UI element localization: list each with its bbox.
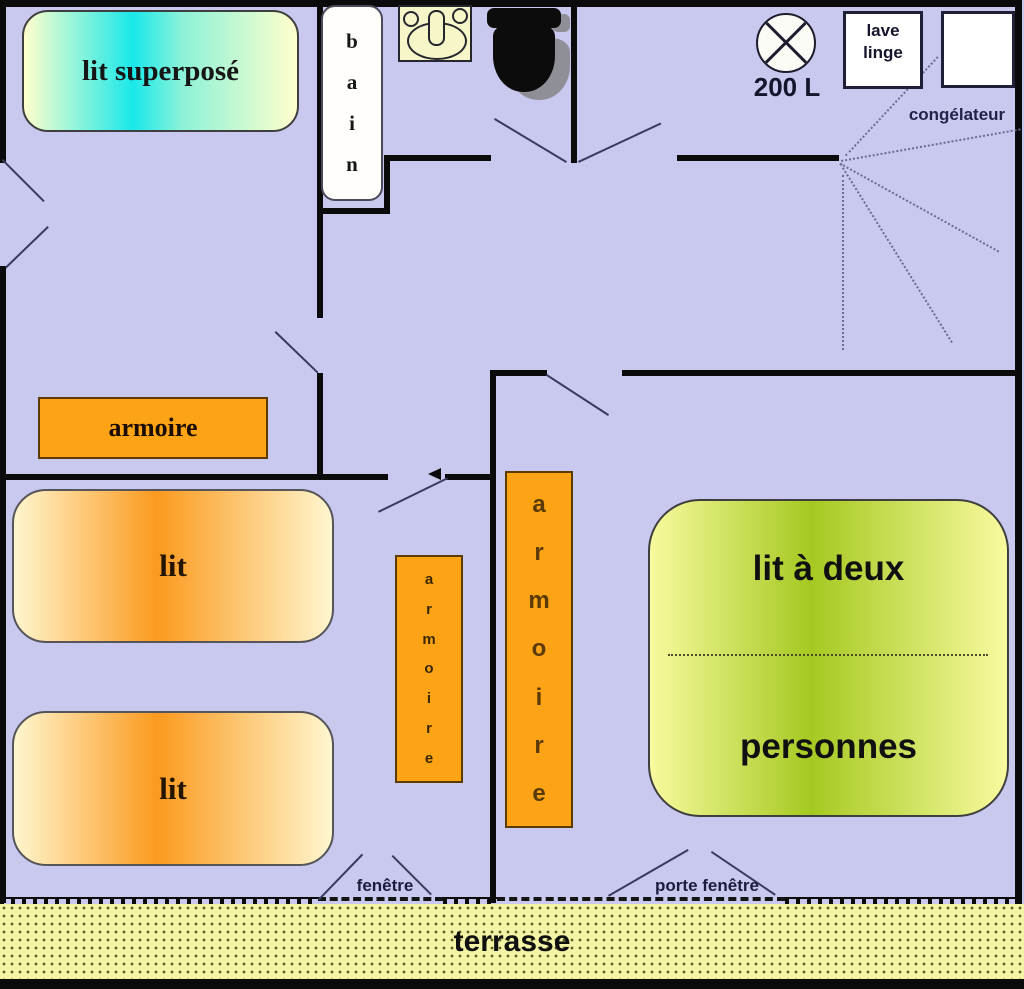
wardrobe-letter: r <box>534 734 543 758</box>
wall-bedroom2-north-right <box>622 370 1015 376</box>
wardrobe-bedroom2: a r m o i r e <box>505 471 573 828</box>
bathtub: b a i n <box>321 5 383 201</box>
wardrobe-letter: i <box>427 691 431 706</box>
wall-kitchen-south <box>677 155 839 161</box>
bathtub-letter: i <box>349 113 355 134</box>
facade-wall-mid <box>443 897 497 904</box>
wardrobe-letter: e <box>425 751 433 766</box>
wall-top <box>0 0 1022 7</box>
bedroom1-door-swing <box>275 331 319 373</box>
wall-bedroom3-north-right <box>445 474 496 480</box>
wardrobe-letter: a <box>532 493 545 517</box>
washer-label-line1: lave <box>866 21 899 40</box>
double-bed: lit à deux personnes <box>648 499 1009 817</box>
single-bed-1: lit <box>12 489 334 643</box>
single-bed-2: lit <box>12 711 334 866</box>
washing-machine: lave linge <box>843 11 923 89</box>
freezer <box>941 11 1015 88</box>
wardrobe-label: armoire <box>108 413 197 443</box>
sink-knob-right <box>452 8 468 24</box>
wardrobe-letter: r <box>426 602 432 617</box>
water-heater-label: 200 L <box>737 72 837 103</box>
wardrobe-letter: m <box>528 589 549 613</box>
kitchen-door-mark <box>578 123 661 163</box>
wall-bedroom2-west <box>490 370 496 903</box>
left-opening-mark-top <box>2 159 45 202</box>
wall-left-lower <box>0 266 6 903</box>
sink-knob-left <box>403 11 419 27</box>
wardrobe-letter: r <box>426 721 432 736</box>
window-strip <box>318 897 443 901</box>
facade-wall-right <box>785 897 1015 904</box>
bedroom3-door-arrow <box>428 468 441 480</box>
bedroom3-door-swing <box>378 477 448 513</box>
wall-tub-nook-right <box>384 155 390 214</box>
terrace-label: terrasse <box>454 925 571 959</box>
wardrobe-letter: a <box>425 572 433 587</box>
bedroom2-door-swing <box>546 374 609 416</box>
sink-faucet <box>428 10 445 46</box>
sink <box>398 5 472 62</box>
toilet-bowl <box>493 24 555 92</box>
wardrobe-letter: e <box>532 782 545 806</box>
wardrobe-bedroom1: armoire <box>38 397 268 459</box>
water-heater-icon <box>756 13 816 73</box>
fan-ray-5 <box>842 175 844 350</box>
floor-plan: lit superposé b a i n 200 L lave linge c… <box>0 0 1024 989</box>
bed-label: lit <box>159 771 187 807</box>
double-bed-label-line1: lit à deux <box>650 549 1007 589</box>
wardrobe-letter: r <box>534 541 543 565</box>
wall-left-upper <box>0 0 6 163</box>
fan-ray-3 <box>840 163 999 252</box>
wall-tub-nook-bottom <box>317 208 390 214</box>
wardrobe-letter: o <box>424 661 433 676</box>
wall-right <box>1015 0 1022 989</box>
bunk-bed: lit superposé <box>22 10 299 132</box>
left-opening-mark-bottom <box>5 226 49 268</box>
wall-bedroom1-right-lower <box>317 373 323 479</box>
washer-label-line2: linge <box>863 43 903 62</box>
wardrobe-letter: i <box>536 686 543 710</box>
wardrobe-letter: o <box>532 637 547 661</box>
wall-bath-kitchen-divider <box>571 0 577 163</box>
double-bed-divider <box>668 654 988 656</box>
double-bed-label-line2: personnes <box>650 727 1007 767</box>
bed-label: lit <box>159 548 187 584</box>
freezer-label: congélateur <box>893 105 1021 125</box>
terrace-edge <box>0 979 1024 989</box>
wall-bedroom2-north-left <box>490 370 547 376</box>
wall-bedroom3-north-left <box>0 474 388 480</box>
wardrobe-letter: m <box>422 632 435 647</box>
wardrobe-bedroom3: a r m o i r e <box>395 555 463 783</box>
bathtub-letter: n <box>346 154 358 175</box>
french-window-label: porte fenêtre <box>632 876 782 896</box>
bathtub-letter: a <box>347 72 358 93</box>
facade-wall-left <box>0 897 318 904</box>
fan-ray-4 <box>839 163 953 343</box>
bunk-bed-label: lit superposé <box>82 55 239 88</box>
wall-bathroom-south-left <box>384 155 491 161</box>
bathtub-letter: b <box>346 31 358 52</box>
bathroom-door-mark <box>494 118 567 163</box>
window-label: fenêtre <box>340 876 430 896</box>
french-window-strip <box>497 897 785 901</box>
fan-ray-2 <box>841 128 1021 162</box>
terrace: terrasse <box>0 904 1024 979</box>
